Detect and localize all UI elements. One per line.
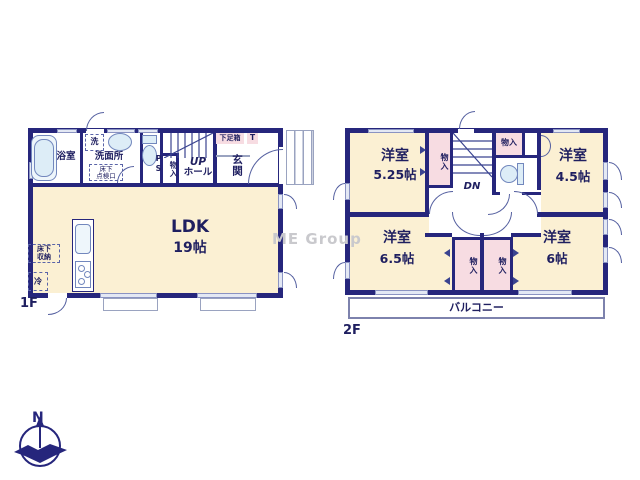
wall [429,185,451,188]
ldk-area: 19帖 [150,240,230,256]
window [57,129,77,133]
porch-steps [286,130,314,185]
closet-n-label: 物入 [496,138,522,147]
wall [480,240,484,290]
terrace-step [200,298,256,311]
window-swing [609,247,622,263]
underfloor-storage-label: 床下 収納 [28,245,60,261]
bifold-door-mark [513,249,519,257]
floor-access-line2: 点検口 [96,172,116,180]
window [138,129,158,133]
window-swing [284,194,297,209]
floorplan-canvas: 浴室 洗 洗面所 床下 点検口 PS 物入 UP ホール 下足箱 T 玄関 床下 [0,0,640,480]
floor1-label: 1F [20,297,52,312]
compass-icon: N [10,404,70,474]
room-se-name: 洋室 [525,230,589,246]
wall [496,155,541,158]
room-ne-area: 4.5帖 [542,170,604,184]
closet-label: 物入 [163,156,177,183]
window [278,272,283,288]
sliding-window [375,290,428,295]
burner [84,271,91,278]
wall [522,133,525,158]
bifold-door-mark [513,277,519,285]
closet-se-label: 物入 [487,248,507,284]
burner [78,265,85,272]
hall [523,133,537,155]
window [603,219,608,235]
toilet-bowl [500,165,518,183]
stairs-down-label: DN [456,181,488,193]
room-ne-name: 洋室 [542,148,604,164]
room-sw-name: 洋室 [365,230,429,246]
window [345,262,350,279]
underfloor-line2: 収納 [37,253,51,261]
shoe-box-label: 下足箱 [216,134,244,142]
closet-sw-label: 物入 [458,248,478,284]
watermark: ME Group [272,230,362,248]
sink [108,133,132,151]
compass-north-label: N [32,410,44,426]
underfloor-line1: 床下 [37,245,51,253]
wall [537,212,603,217]
toilet-tank [517,163,524,185]
door-swing [86,112,104,131]
window-swing [333,262,345,279]
window [603,247,608,263]
window-swing [333,183,345,200]
burner [78,278,85,285]
window [278,194,283,209]
kitchen-sink [75,224,91,254]
bifold-door-mark [444,249,450,257]
floor2-label: 2F [343,324,375,339]
sliding-window [518,290,572,295]
pipe-space-label: PS [152,150,163,178]
toilet-t-label: T [247,134,258,143]
ldk-name: LDK [150,218,230,238]
stairs-up [164,133,213,158]
window [553,129,580,133]
window-swing [609,219,622,235]
washroom-label: 洗面所 [86,152,132,163]
wall [33,183,278,187]
wall [452,240,455,290]
stairs-hall-label: ホール [176,168,220,179]
fridge-label: 冷 [28,277,48,286]
window [603,192,608,208]
toilet-tank [142,135,157,144]
room-nw-area: 5.25帖 [360,168,430,182]
terrace-step [103,298,158,311]
bifold-door-mark [444,277,450,285]
window-swing [609,162,622,180]
wall [350,212,429,217]
window-swing [284,272,297,288]
entrance-label: 玄関 [229,148,243,182]
room-nw-name: 洋室 [360,148,430,164]
room-se-area: 6帖 [525,252,589,266]
door-swing [459,111,475,129]
closet-nw-label: 物入 [431,145,449,179]
washer-label: 洗 [85,137,104,146]
balcony-label: バルコニー [348,302,605,315]
window-swing [609,192,622,208]
door-opening [458,129,474,133]
window [345,183,350,200]
room-sw-area: 6.5帖 [365,252,429,266]
sliding-window [368,129,414,133]
bath-label: 浴室 [48,152,84,163]
